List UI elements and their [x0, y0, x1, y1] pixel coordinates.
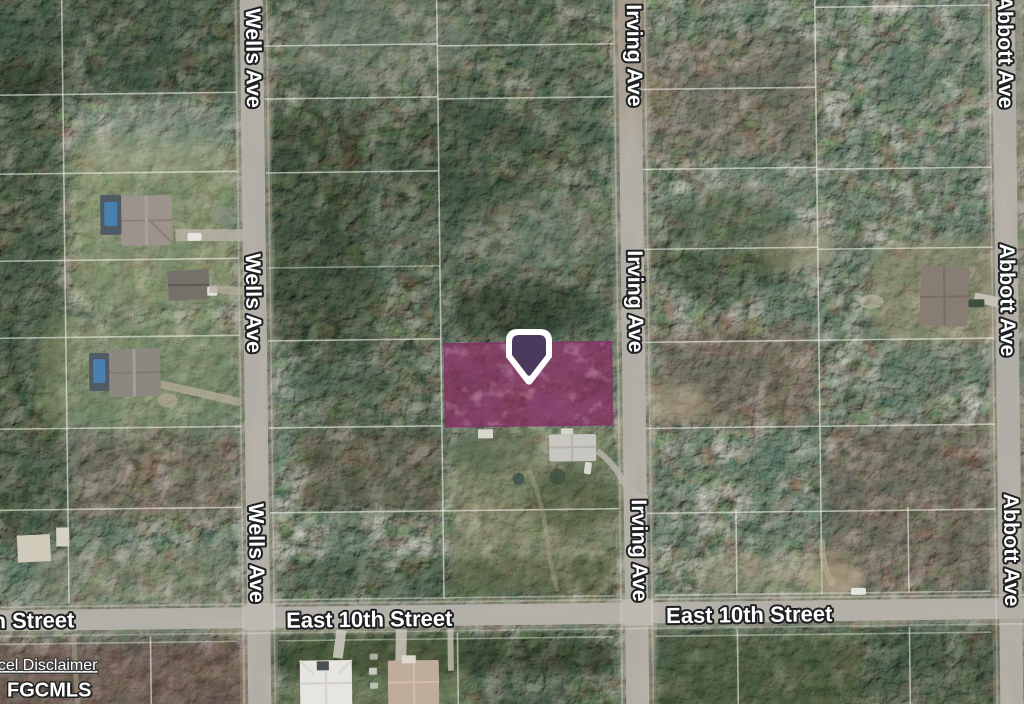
svg-text:Wells Ave: Wells Ave — [244, 503, 269, 603]
svg-text:Abbott Ave: Abbott Ave — [999, 493, 1024, 606]
svg-text:Abbott Ave: Abbott Ave — [993, 0, 1018, 109]
svg-text:Parcel Disclaimer: Parcel Disclaimer — [0, 657, 98, 674]
svg-text:FGCMLS: FGCMLS — [7, 680, 91, 702]
svg-text:Irving Ave: Irving Ave — [622, 4, 647, 107]
svg-text:Abbott Ave: Abbott Ave — [995, 243, 1020, 356]
svg-text:Irving Ave: Irving Ave — [623, 250, 648, 353]
svg-text:Irving Ave: Irving Ave — [627, 499, 652, 602]
svg-text:Wells Ave: Wells Ave — [241, 8, 266, 108]
svg-text:East 10th Street: East 10th Street — [0, 607, 75, 634]
svg-text:East 10th Street: East 10th Street — [286, 606, 453, 633]
svg-text:Wells Ave: Wells Ave — [241, 253, 266, 353]
svg-text:East 10th Street: East 10th Street — [666, 601, 833, 628]
